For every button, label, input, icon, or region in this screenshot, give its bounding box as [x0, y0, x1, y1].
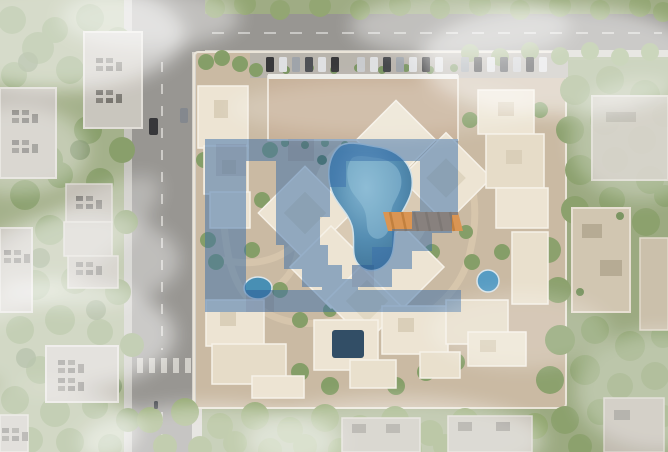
aerial-render: Aerial top-down 3D render of a residenti… — [0, 0, 668, 452]
aerial-render-stage: Aerial top-down 3D render of a residenti… — [0, 0, 668, 452]
bright-wash-overlay — [0, 0, 668, 452]
